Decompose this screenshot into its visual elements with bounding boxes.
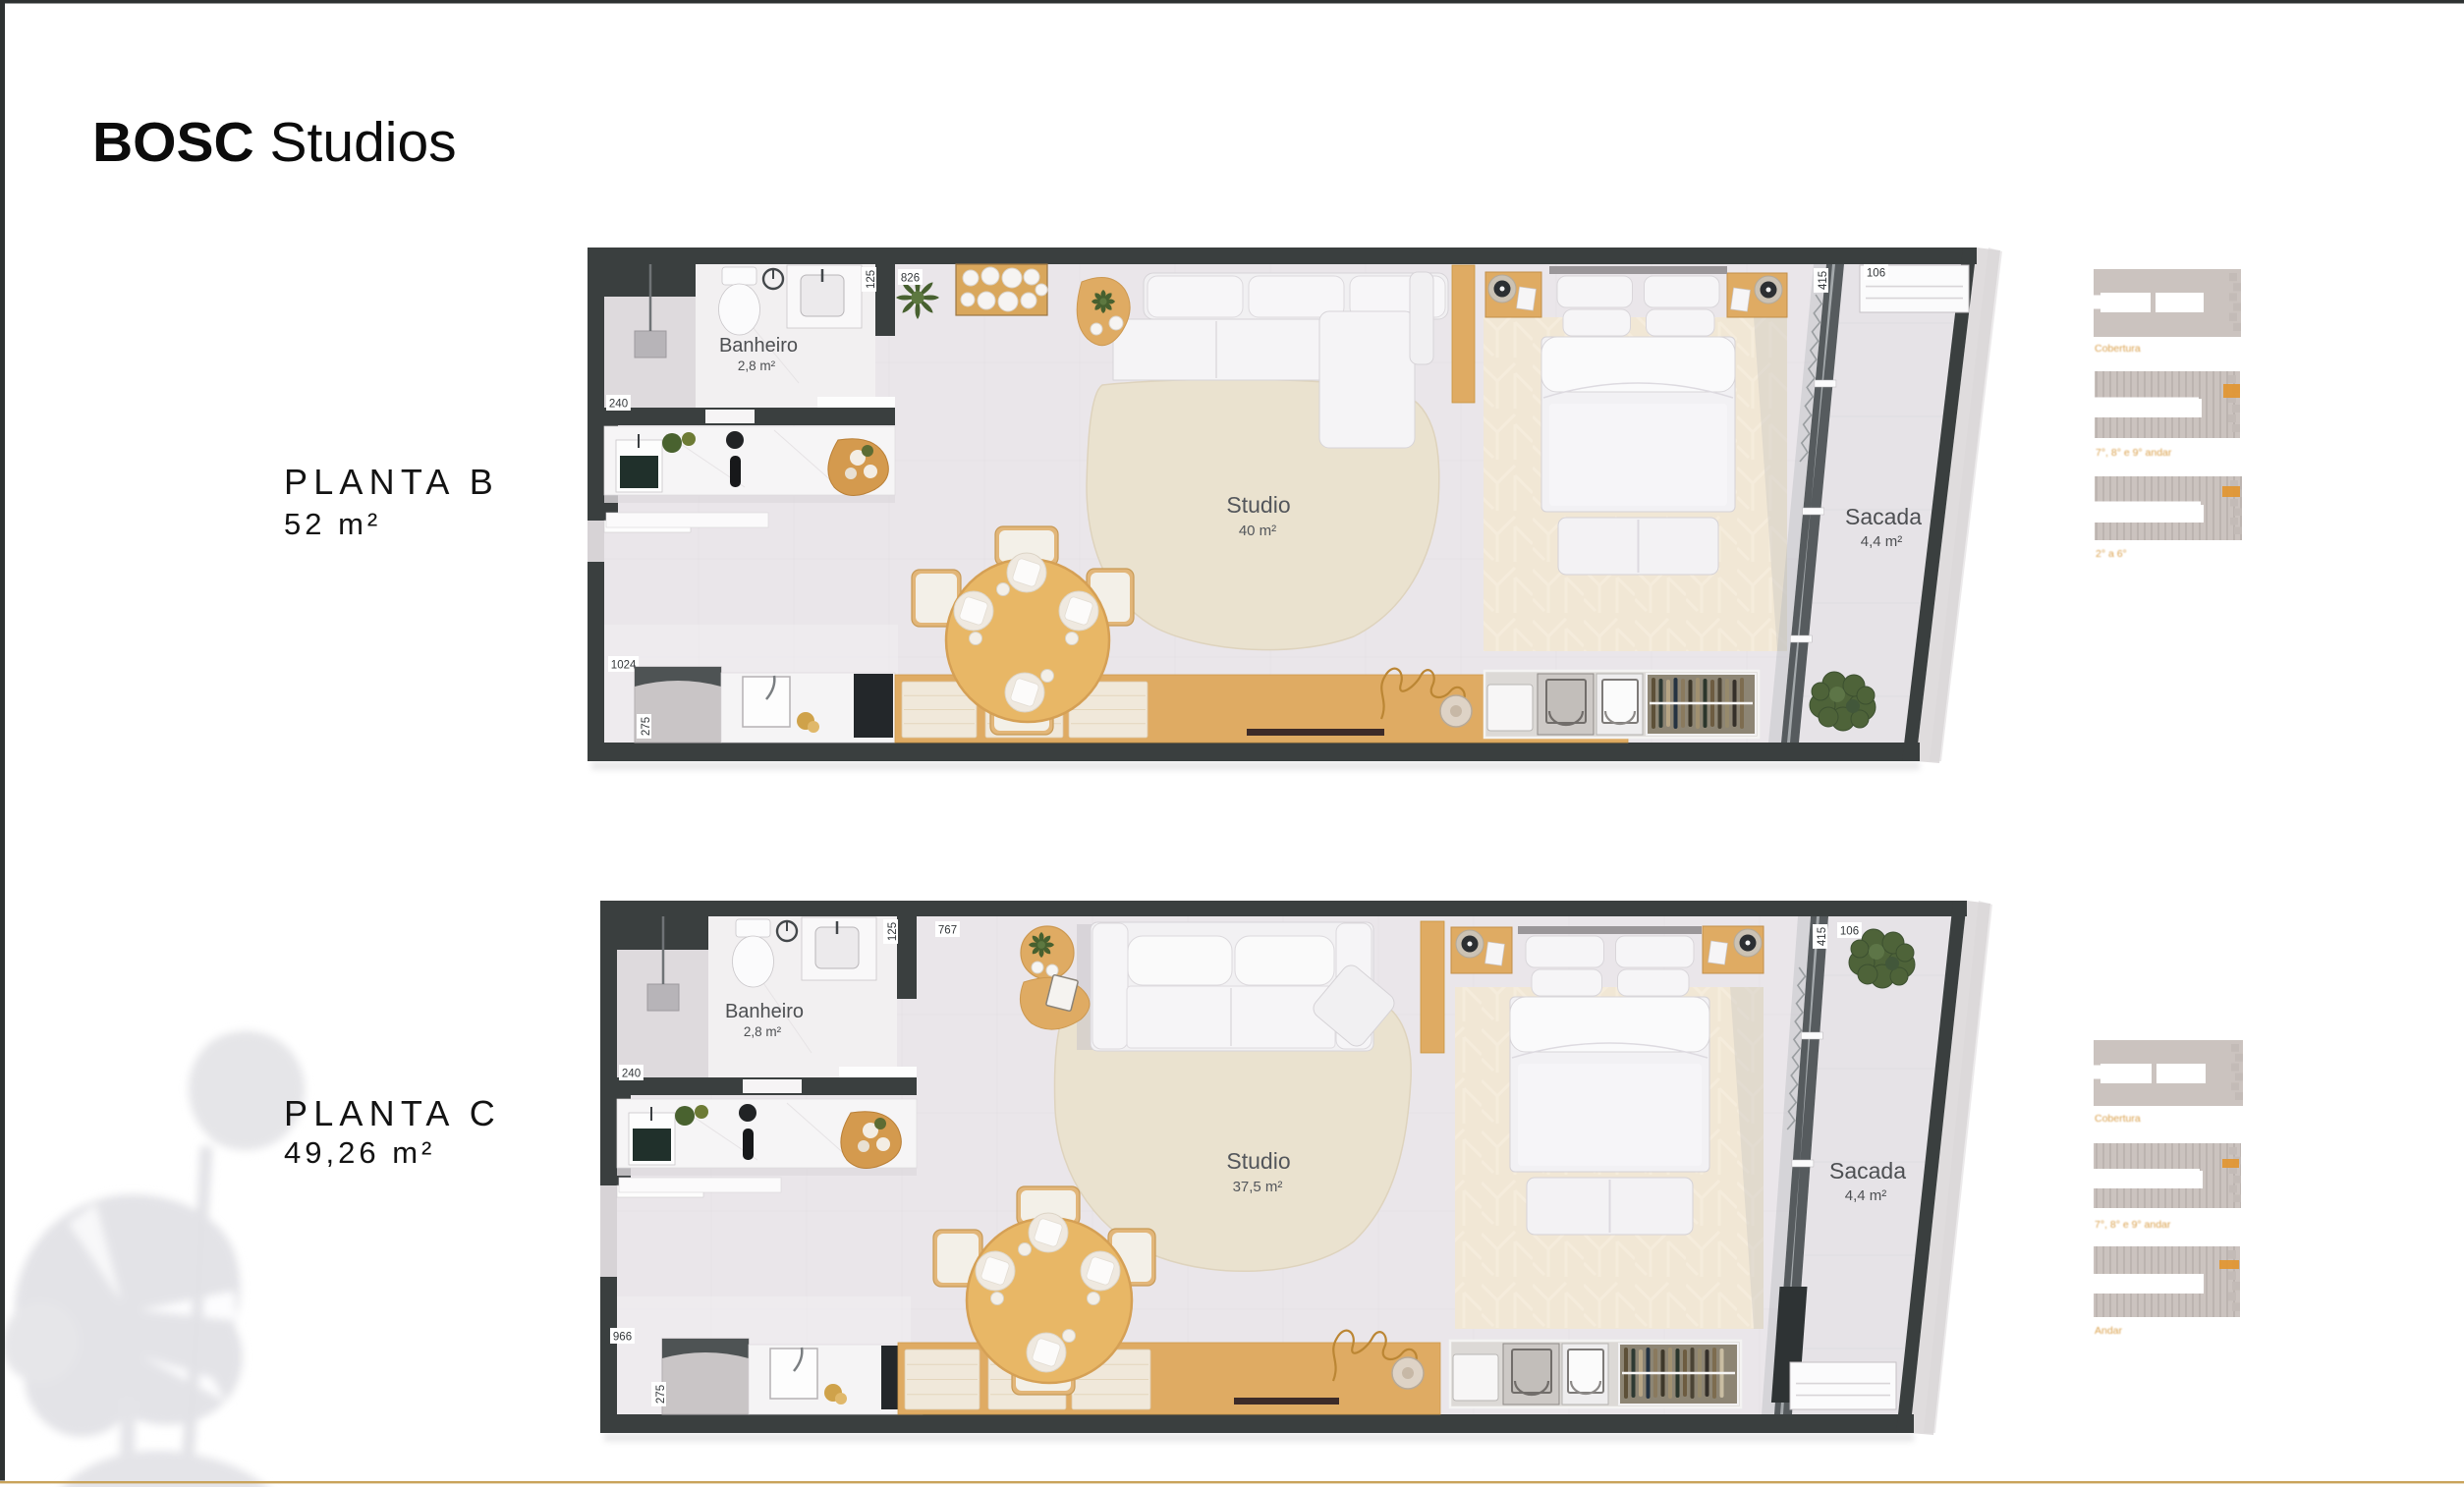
svg-text:240: 240 — [609, 399, 628, 411]
svg-text:1024: 1024 — [611, 660, 637, 672]
svg-text:415: 415 — [1817, 927, 1828, 946]
svg-text:415: 415 — [1818, 271, 1829, 290]
svg-text:Sacada: Sacada — [1845, 504, 1922, 529]
svg-text:966: 966 — [613, 1332, 632, 1344]
svg-text:275: 275 — [655, 1385, 667, 1404]
svg-text:2,8 m²: 2,8 m² — [738, 358, 776, 373]
svg-text:37,5 m²: 37,5 m² — [1233, 1179, 1283, 1195]
svg-text:826: 826 — [901, 273, 920, 285]
svg-text:4,4 m²: 4,4 m² — [1861, 533, 1903, 550]
svg-text:2° a 6°: 2° a 6° — [2096, 548, 2127, 560]
svg-text:52 m²: 52 m² — [284, 507, 381, 541]
svg-text:767: 767 — [938, 925, 957, 937]
svg-text:Andar: Andar — [2095, 1325, 2123, 1337]
svg-text:240: 240 — [622, 1069, 641, 1080]
svg-text:106: 106 — [1867, 268, 1885, 280]
svg-text:Cobertura: Cobertura — [2095, 1113, 2141, 1125]
svg-text:125: 125 — [887, 922, 899, 941]
svg-text:Studio: Studio — [1226, 492, 1290, 518]
svg-text:PLANTA C: PLANTA C — [284, 1093, 501, 1133]
svg-text:106: 106 — [1840, 926, 1859, 938]
svg-text:7°, 8° e 9° andar: 7°, 8° e 9° andar — [2096, 447, 2172, 459]
svg-text:BOSC Studios: BOSC Studios — [92, 111, 457, 174]
svg-text:Studio: Studio — [1226, 1148, 1290, 1174]
svg-text:PLANTA B: PLANTA B — [284, 462, 499, 502]
svg-text:125: 125 — [866, 270, 877, 289]
svg-text:7°, 8° e 9° andar: 7°, 8° e 9° andar — [2095, 1219, 2171, 1231]
svg-text:275: 275 — [641, 717, 652, 736]
svg-text:40 m²: 40 m² — [1239, 523, 1276, 539]
svg-text:Banheiro: Banheiro — [725, 1001, 804, 1022]
svg-text:2,8 m²: 2,8 m² — [744, 1024, 782, 1039]
svg-text:49,26 m²: 49,26 m² — [284, 1135, 435, 1170]
svg-text:Cobertura: Cobertura — [2095, 343, 2141, 355]
svg-text:Banheiro: Banheiro — [719, 335, 798, 357]
svg-text:4,4 m²: 4,4 m² — [1845, 1187, 1887, 1204]
svg-text:Sacada: Sacada — [1829, 1158, 1906, 1184]
